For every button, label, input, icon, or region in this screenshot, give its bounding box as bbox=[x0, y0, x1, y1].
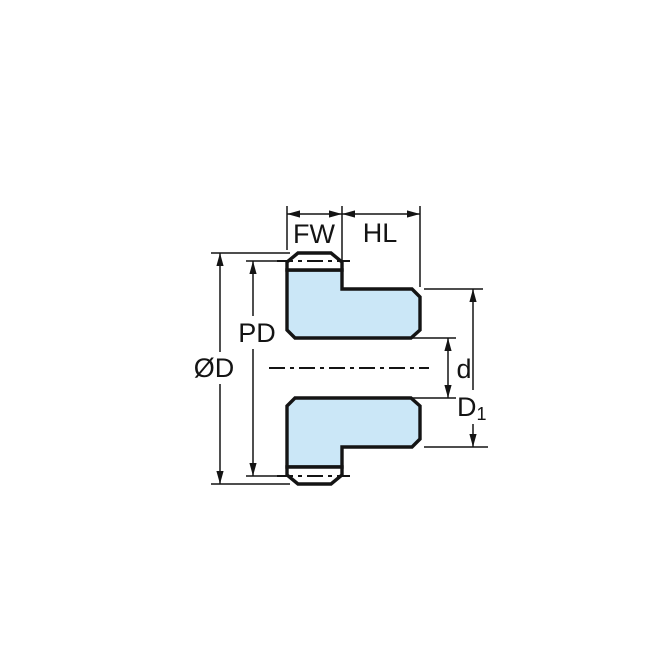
hl-arrow-right bbox=[407, 210, 420, 217]
gear-cross-section-drawing: FW HL ØD PD d D1 bbox=[0, 0, 670, 670]
hub-diameter-label-subscript: 1 bbox=[477, 404, 487, 424]
hub-diameter-label-base: D bbox=[457, 392, 477, 422]
od-arrow-down bbox=[216, 471, 223, 484]
face-width-label: FW bbox=[293, 219, 335, 249]
gear-dimension-diagram: FW HL ØD PD d D1 bbox=[0, 0, 670, 670]
hub-diameter-label: D1 bbox=[457, 392, 487, 424]
hl-arrow-left bbox=[342, 210, 355, 217]
outside-diameter-label: ØD bbox=[194, 353, 235, 383]
pd-arrow-up bbox=[249, 261, 256, 274]
fw-arrow-left bbox=[287, 210, 300, 217]
od-arrow-up bbox=[216, 253, 223, 266]
d-arrow-up bbox=[444, 338, 451, 351]
d1-arrow-up bbox=[469, 289, 476, 302]
bore-diameter-label: d bbox=[456, 354, 471, 384]
pd-arrow-down bbox=[249, 463, 256, 476]
d-arrow-down bbox=[444, 385, 451, 398]
pitch-diameter-label: PD bbox=[238, 318, 276, 348]
hub-length-label: HL bbox=[363, 218, 398, 248]
gear-body-lower-section bbox=[287, 398, 420, 467]
d1-arrow-down bbox=[469, 434, 476, 447]
fw-arrow-right bbox=[329, 210, 342, 217]
gear-body-upper-section bbox=[287, 270, 420, 338]
